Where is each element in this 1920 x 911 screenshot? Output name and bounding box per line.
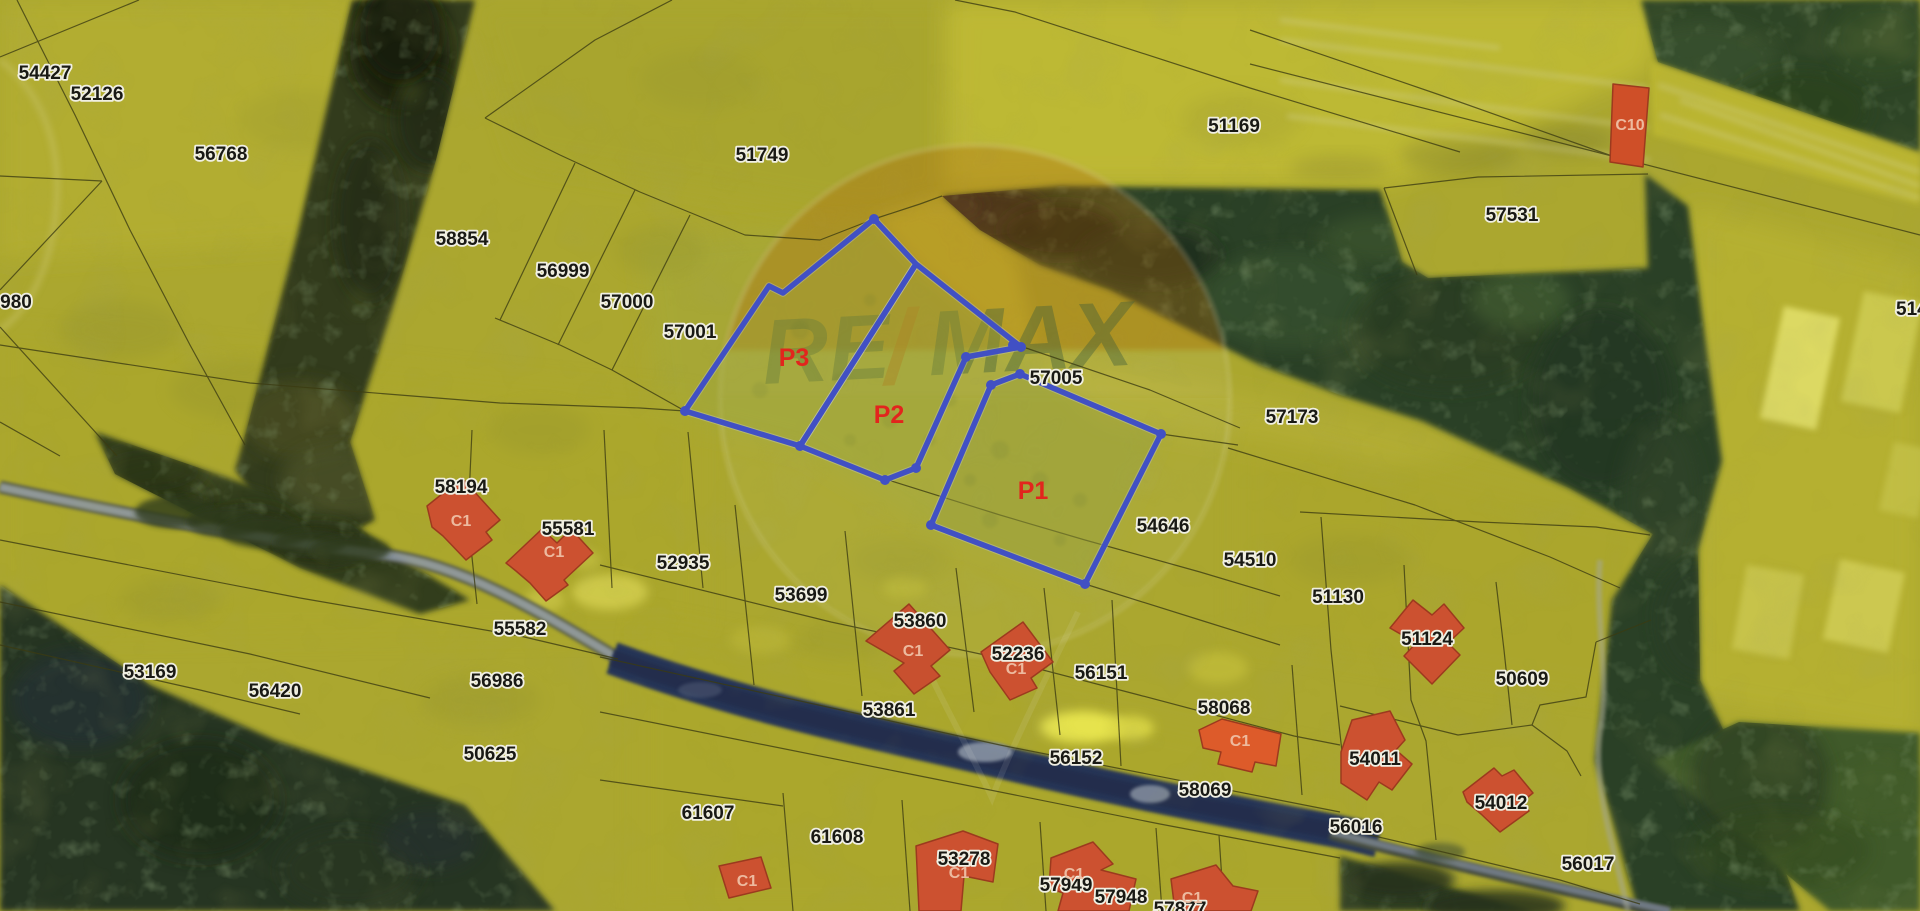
svg-text:54646: 54646 (1137, 516, 1190, 537)
svg-text:61607: 61607 (682, 803, 735, 824)
svg-text:54427: 54427 (19, 63, 72, 84)
svg-text:C1: C1 (1230, 733, 1251, 750)
svg-text:57000: 57000 (601, 292, 654, 313)
svg-text:56768: 56768 (195, 144, 248, 165)
svg-text:51169: 51169 (1208, 116, 1260, 137)
svg-text:57001: 57001 (664, 322, 717, 343)
svg-text:50980: 50980 (0, 292, 32, 313)
svg-text:58069: 58069 (1179, 780, 1232, 801)
svg-text:53169: 53169 (124, 662, 177, 683)
svg-text:52126: 52126 (71, 84, 124, 105)
svg-text:C1: C1 (1006, 661, 1027, 678)
svg-text:C1: C1 (451, 513, 472, 530)
svg-text:56151: 56151 (1075, 663, 1128, 684)
svg-text:P2: P2 (874, 401, 905, 429)
svg-text:58854: 58854 (436, 229, 489, 250)
svg-text:56016: 56016 (1330, 817, 1383, 838)
svg-text:57173: 57173 (1266, 407, 1319, 428)
svg-text:5141: 5141 (1896, 299, 1920, 320)
svg-text:58068: 58068 (1198, 698, 1251, 719)
svg-text:C1: C1 (544, 544, 565, 561)
svg-text:55581: 55581 (542, 519, 595, 540)
svg-text:52935: 52935 (657, 553, 710, 574)
svg-text:51749: 51749 (736, 145, 789, 166)
svg-text:56420: 56420 (249, 681, 302, 702)
svg-text:56017: 56017 (1562, 854, 1615, 875)
svg-text:61608: 61608 (811, 827, 864, 848)
svg-text:50609: 50609 (1496, 669, 1549, 690)
svg-text:C1: C1 (949, 865, 970, 882)
svg-text:C10: C10 (1615, 117, 1644, 134)
svg-text:53860: 53860 (894, 611, 947, 632)
svg-text:54011: 54011 (1349, 749, 1401, 770)
svg-text:55582: 55582 (494, 619, 547, 640)
svg-text:53699: 53699 (775, 585, 828, 606)
svg-text:56999: 56999 (537, 261, 590, 282)
svg-text:51130: 51130 (1312, 587, 1364, 608)
svg-text:57531: 57531 (1486, 205, 1539, 226)
svg-text:57005: 57005 (1030, 368, 1083, 389)
svg-text:P3: P3 (779, 344, 810, 372)
svg-text:54510: 54510 (1224, 550, 1277, 571)
svg-text:50625: 50625 (464, 744, 517, 765)
svg-text:C1: C1 (737, 873, 758, 890)
svg-text:53861: 53861 (863, 700, 916, 721)
svg-text:57948: 57948 (1095, 887, 1148, 908)
svg-text:C1: C1 (1182, 890, 1203, 907)
svg-text:56152: 56152 (1050, 748, 1103, 769)
svg-text:58194: 58194 (435, 477, 488, 498)
svg-text:C1: C1 (903, 643, 924, 660)
svg-text:54012: 54012 (1475, 793, 1528, 814)
svg-text:51124: 51124 (1401, 629, 1453, 650)
svg-text:C1: C1 (1064, 866, 1085, 883)
svg-text:P1: P1 (1018, 477, 1049, 505)
svg-text:56986: 56986 (471, 671, 524, 692)
